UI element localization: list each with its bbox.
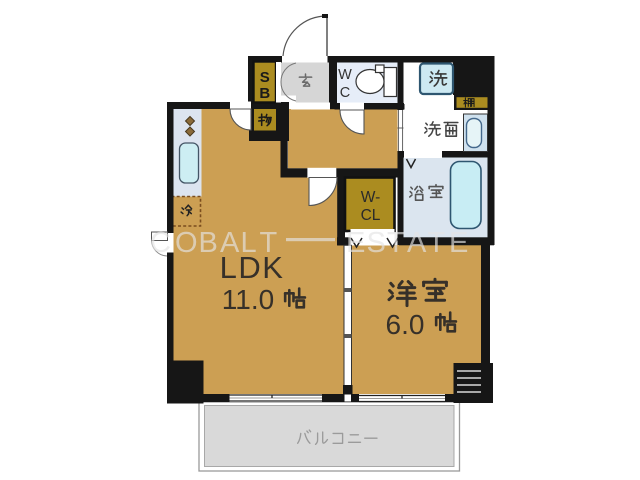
svg-text:B: B: [259, 85, 270, 102]
svg-text:W-: W-: [361, 189, 381, 206]
svg-text:W: W: [338, 67, 352, 83]
svg-text:11.0: 11.0: [222, 284, 274, 315]
svg-text:S: S: [260, 69, 270, 86]
svg-text:CL: CL: [361, 207, 381, 224]
svg-text:ESTATE: ESTATE: [346, 227, 468, 259]
svg-text:6.0: 6.0: [386, 309, 425, 340]
svg-text:C: C: [340, 85, 350, 101]
